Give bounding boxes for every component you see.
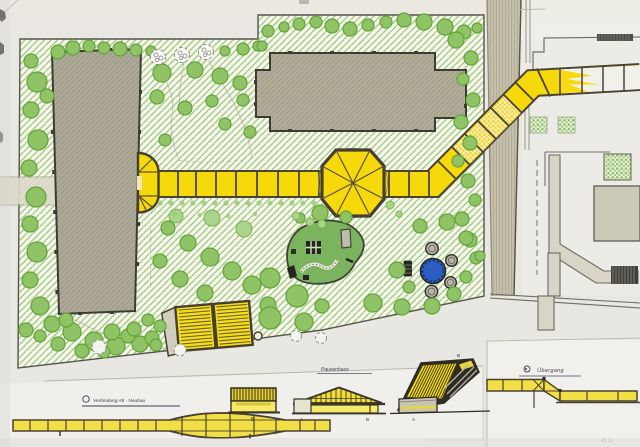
svg-text:Übergang: Übergang: [537, 367, 565, 374]
svg-text:B: B: [457, 353, 460, 358]
svg-text:45 11: 45 11: [601, 438, 613, 444]
svg-text:Pausenhaus: Pausenhaus: [321, 367, 349, 373]
svg-text:B: B: [366, 417, 369, 422]
svg-text:Verbindung Alt - Neubau: Verbindung Alt - Neubau: [93, 398, 146, 404]
